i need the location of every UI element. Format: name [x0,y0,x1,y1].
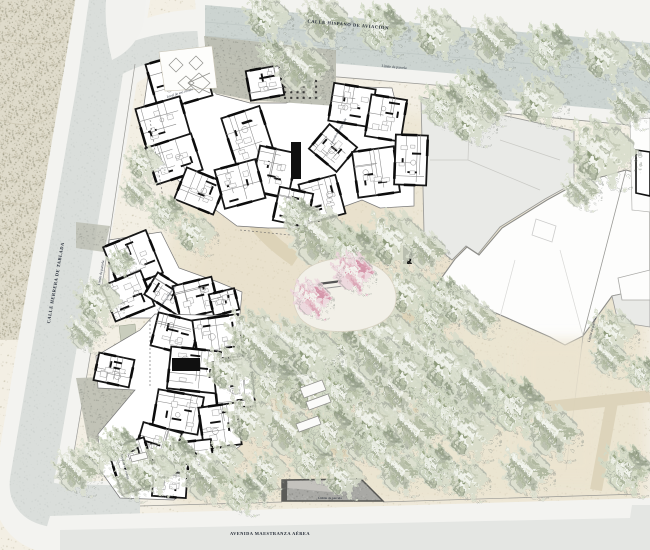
svg-text:AVENIDA MAESTRANZA AÉREA: AVENIDA MAESTRANZA AÉREA [230,531,310,536]
svg-text:Límite de parcela: Límite de parcela [318,496,342,500]
